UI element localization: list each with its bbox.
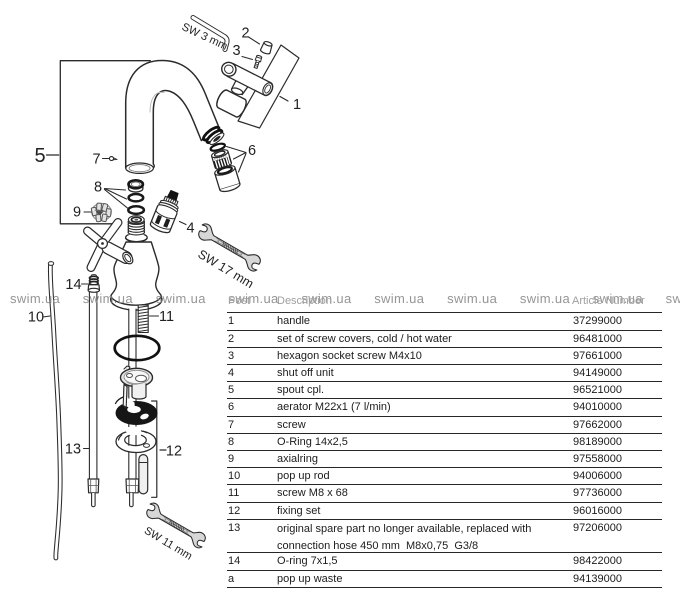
svg-text:swim.ua: swim.ua xyxy=(374,291,425,306)
svg-text:10: 10 xyxy=(28,310,44,326)
svg-text:4: 4 xyxy=(186,221,194,237)
svg-text:9: 9 xyxy=(73,205,81,221)
svg-text:12: 12 xyxy=(166,444,182,460)
svg-text:5: 5 xyxy=(34,145,45,167)
svg-text:11: 11 xyxy=(159,309,174,325)
svg-text:14: 14 xyxy=(65,277,81,293)
svg-text:swim.ua: swim.ua xyxy=(666,291,680,306)
svg-text:swim.ua: swim.ua xyxy=(83,291,134,306)
svg-text:7: 7 xyxy=(92,152,100,168)
svg-text:1: 1 xyxy=(293,97,301,113)
svg-text:3: 3 xyxy=(232,43,240,59)
svg-text:swim.ua: swim.ua xyxy=(447,291,498,306)
svg-text:13: 13 xyxy=(65,442,81,458)
svg-text:swim.ua: swim.ua xyxy=(10,291,61,306)
svg-text:8: 8 xyxy=(94,180,102,196)
svg-text:2: 2 xyxy=(241,26,249,42)
svg-text:6: 6 xyxy=(248,143,256,159)
svg-text:swim.ua: swim.ua xyxy=(520,291,571,306)
svg-text:SW 17 mm: SW 17 mm xyxy=(195,247,256,291)
svg-text:swim.ua: swim.ua xyxy=(156,291,207,306)
